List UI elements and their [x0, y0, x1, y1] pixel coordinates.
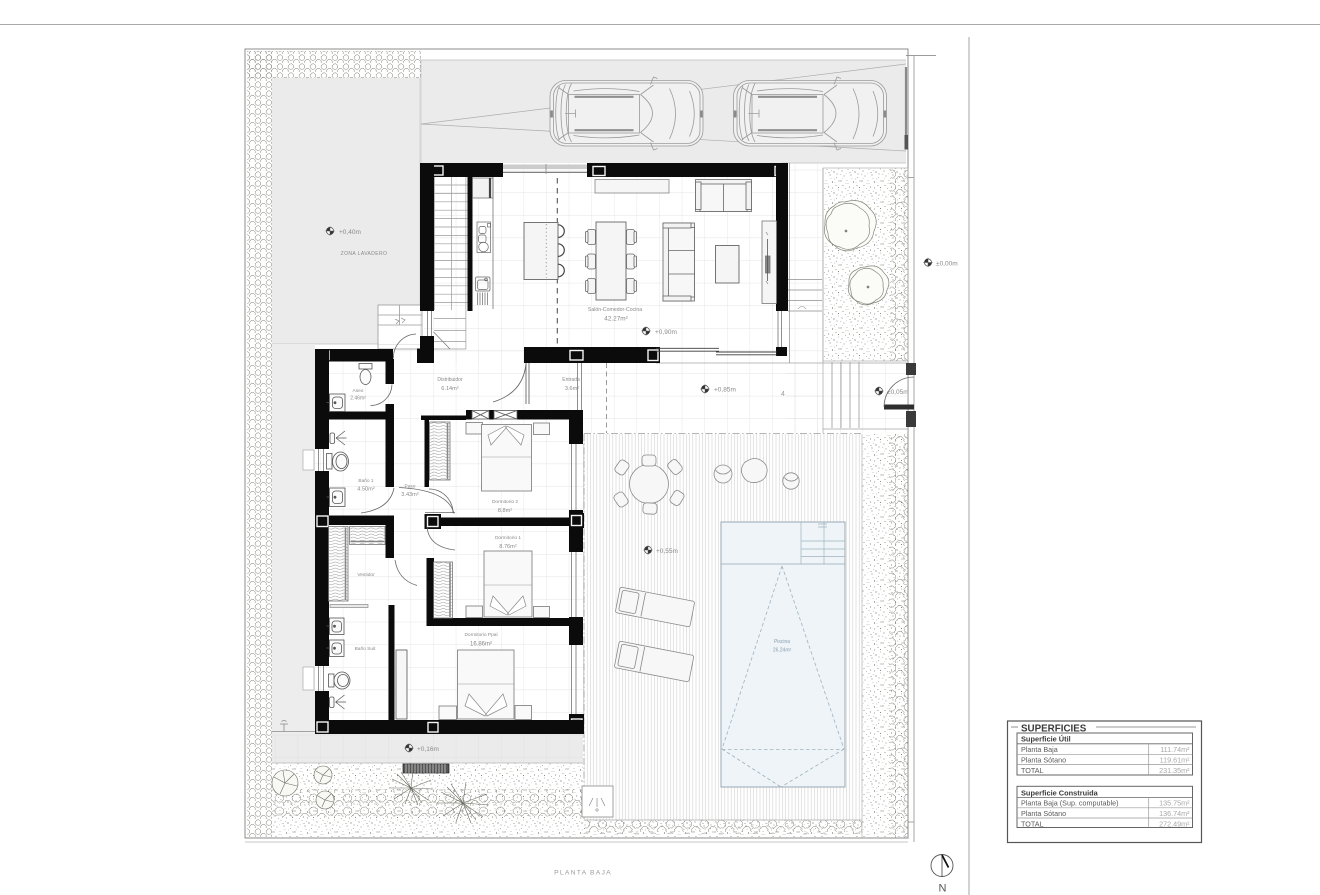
svg-text:2.46m²: 2.46m² — [350, 396, 366, 402]
svg-text:Planta Baja: Planta Baja — [1021, 745, 1058, 754]
svg-text:Superficie Útil: Superficie Útil — [1021, 735, 1071, 744]
svg-text:136.74m²: 136.74m² — [1159, 809, 1190, 818]
svg-text:Dormitorio Ppal: Dormitorio Ppal — [464, 632, 497, 638]
svg-text:+0,85m: +0,85m — [714, 387, 736, 394]
svg-text:+0,40m: +0,40m — [339, 229, 361, 236]
svg-text:42.27m²: 42.27m² — [604, 316, 627, 323]
svg-text:Superficie Construida: Superficie Construida — [1021, 788, 1099, 797]
svg-text:Salón-Comedor-Cocina: Salón-Comedor-Cocina — [588, 307, 642, 313]
svg-text:135.75m²: 135.75m² — [1159, 799, 1190, 808]
svg-text:8.8m²: 8.8m² — [498, 508, 512, 514]
svg-text:Paso: Paso — [405, 484, 416, 490]
svg-text:8.76m²: 8.76m² — [499, 544, 517, 550]
svg-text:TOTAL: TOTAL — [1021, 819, 1044, 828]
svg-text:±0,05m: ±0,05m — [887, 389, 909, 396]
svg-text:Baño Suit: Baño Suit — [355, 646, 376, 652]
svg-text:Baño 1: Baño 1 — [358, 478, 374, 484]
svg-text:TOTAL: TOTAL — [1021, 766, 1044, 775]
svg-text:PLANTA BAJA: PLANTA BAJA — [554, 870, 612, 877]
svg-text:16.86m²: 16.86m² — [470, 642, 492, 648]
svg-text:Vestidor: Vestidor — [357, 572, 375, 578]
svg-text:4.50m²: 4.50m² — [357, 487, 375, 493]
svg-text:Distribuidor: Distribuidor — [437, 377, 463, 383]
svg-text:119.61m²: 119.61m² — [1160, 756, 1190, 765]
svg-text:26.24m²: 26.24m² — [773, 648, 792, 654]
svg-text:6.14m²: 6.14m² — [441, 386, 459, 392]
svg-text:Entrada: Entrada — [562, 377, 580, 383]
svg-text:+0,16m: +0,16m — [417, 746, 439, 753]
svg-text:N: N — [939, 883, 947, 895]
svg-text:Aseo: Aseo — [353, 388, 364, 394]
svg-text:Dormitorio 2: Dormitorio 2 — [492, 499, 518, 505]
svg-text:Dormitorio 1: Dormitorio 1 — [495, 535, 521, 541]
svg-text:Planta Baja (Sup. computable): Planta Baja (Sup. computable) — [1021, 799, 1119, 808]
svg-text:272.49m²: 272.49m² — [1159, 819, 1190, 828]
svg-text:ZONA LAVADERO: ZONA LAVADERO — [341, 251, 388, 257]
svg-text:+0,90m: +0,90m — [655, 329, 677, 336]
svg-text:Planta Sótano: Planta Sótano — [1021, 809, 1066, 818]
svg-text:111.74m²: 111.74m² — [1160, 745, 1190, 754]
svg-text:Piscina: Piscina — [774, 639, 790, 645]
svg-text:+0,55m: +0,55m — [656, 548, 678, 555]
svg-text:Planta Sótano: Planta Sótano — [1021, 756, 1066, 765]
svg-text:±0,00m: ±0,00m — [936, 261, 958, 268]
svg-text:3.6m²: 3.6m² — [565, 386, 579, 392]
svg-text:231.35m²: 231.35m² — [1159, 766, 1190, 775]
svg-text:4: 4 — [781, 391, 785, 398]
svg-text:3.43m²: 3.43m² — [401, 492, 419, 498]
